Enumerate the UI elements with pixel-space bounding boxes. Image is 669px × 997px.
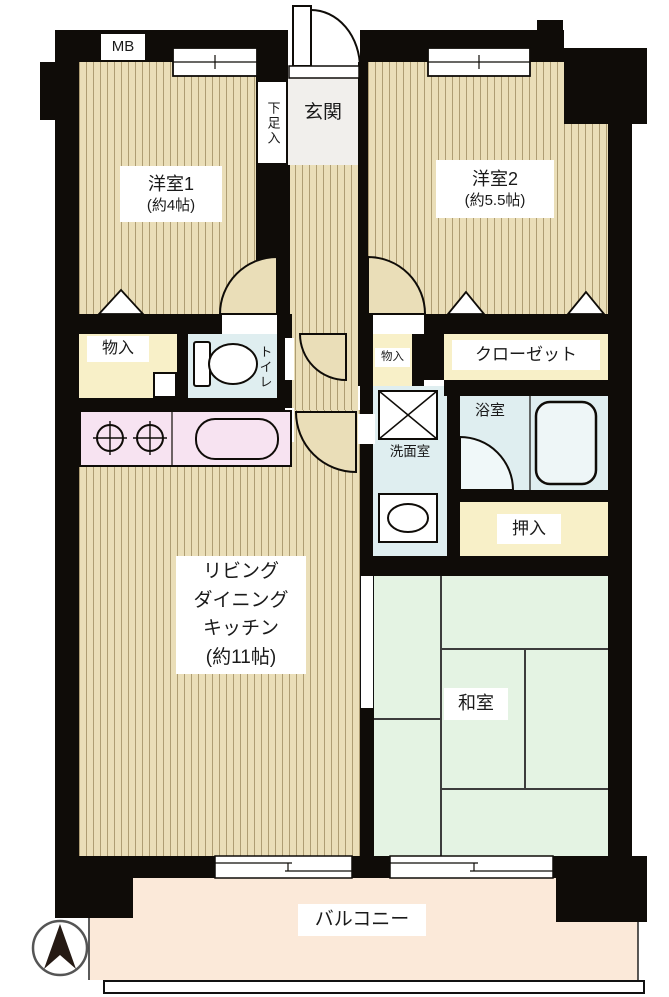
japanese-room-label: 和室 [444, 688, 508, 720]
sliding-opening-ldk-washitsu [360, 576, 374, 708]
wall-bath-oshiire [460, 490, 608, 502]
wall-hall-west2 [358, 62, 368, 314]
wall-top-left [55, 30, 288, 62]
wall-washroom-bath [447, 386, 460, 558]
balcony-label: バルコニー [298, 904, 426, 936]
pillar-box [153, 372, 177, 398]
washroom-label: 洗面室 [373, 442, 447, 462]
toilet-label: トイレ [252, 338, 276, 396]
wall-corner-block-tr [564, 48, 647, 124]
wall-shoe-top [256, 62, 288, 80]
oshiire-label: 押入 [497, 514, 561, 544]
compass-icon [33, 921, 87, 975]
wall-top-right [360, 30, 564, 62]
tatami-line [374, 718, 440, 720]
western1-label: 洋室1 (約4帖) [120, 166, 222, 222]
wall-storage-toilet [177, 334, 188, 398]
entrance-door-arc [311, 10, 360, 68]
entrance-threshold [289, 66, 359, 78]
wall-block-bottom-left [55, 856, 133, 918]
wall-closet-bottom [444, 380, 608, 396]
wall-left-bump [40, 62, 56, 120]
wall-block-bottom-right [556, 856, 647, 922]
entrance-label: 玄関 [288, 98, 358, 128]
wall-storagec-right [412, 334, 424, 386]
storage-center-label: 物入 [375, 348, 410, 367]
kitchen-counter [79, 410, 292, 467]
tatami-line [440, 576, 442, 856]
wall-spine-hall [358, 314, 373, 386]
wall-mid-bottom [360, 556, 608, 576]
wall-left [55, 30, 79, 878]
wall-washroom-left [360, 386, 373, 556]
western2-label: 洋室2 (約5.5帖) [436, 160, 554, 218]
tatami-line [440, 788, 608, 790]
tatami-line [524, 648, 526, 788]
ldk-label: リビング ダイニング キッチン (約11帖) [176, 556, 306, 674]
wall-ldk-washitsu [360, 708, 374, 856]
meter-box-label: MB [100, 33, 146, 61]
wall-bottom [55, 856, 632, 878]
floor-plan: MB 玄関 下足入 洋室1 (約4帖) 洋室2 (約5.5帖) 物入 トイレ 物… [0, 0, 669, 997]
door-gap-washroom [358, 414, 375, 444]
wall-kitchen-top [79, 398, 292, 410]
wall-west1-hall [256, 165, 290, 314]
wall-right [608, 62, 632, 878]
balcony-floor-step [90, 918, 133, 980]
door-gap [285, 338, 294, 380]
balcony-railing [103, 980, 645, 994]
storage-left-label: 物入 [87, 336, 149, 362]
closet-label: クローゼット [452, 340, 600, 370]
hallway-floor [288, 165, 358, 410]
wall-mid-c [424, 314, 632, 334]
entrance-door-leaf [293, 6, 311, 66]
wall-top-stub [537, 20, 563, 62]
washroom-floor [373, 386, 447, 556]
wall-mid-a [55, 314, 222, 334]
bathroom-label: 浴室 [462, 400, 518, 422]
wall-closet-left [424, 334, 444, 380]
shoe-storage-label: 下足入 [258, 86, 286, 160]
